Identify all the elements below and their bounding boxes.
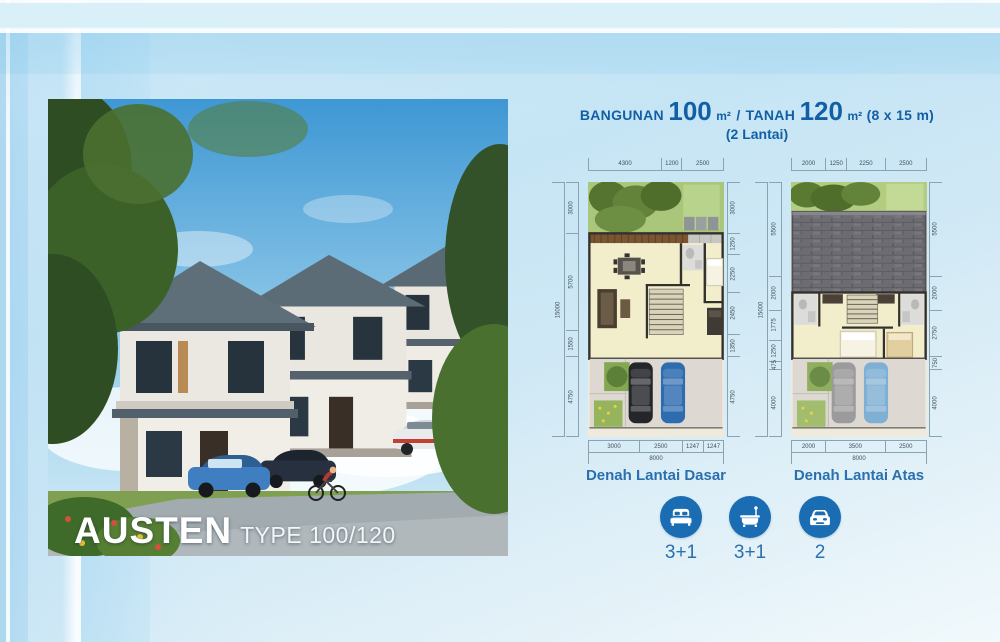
- dim-label: 2250: [859, 161, 872, 167]
- project-type: TYPE 100/120: [240, 522, 396, 548]
- dim-label: 2500: [899, 161, 912, 167]
- dim-label: 4300: [618, 161, 631, 167]
- dim-label: 1250: [772, 344, 778, 357]
- spec-line1: BANGUNAN 100 m² / TANAH 120 m² (8 x 15 m…: [545, 98, 969, 125]
- dim-label: 3000: [569, 201, 575, 214]
- bangunan-value: 100: [668, 96, 711, 126]
- dim-label: 2500: [654, 444, 667, 450]
- feature-carports: 2: [791, 496, 849, 564]
- feature-bathrooms: 3+1: [721, 496, 779, 564]
- dim-label: 1247: [686, 444, 699, 450]
- dims-top-upper: 2000125022502500: [791, 158, 927, 171]
- dim-label: 1250: [829, 161, 842, 167]
- dim-label: 2000: [772, 286, 778, 299]
- dim-label: 3000: [731, 201, 737, 214]
- bathroom-count: 3+1: [721, 542, 779, 564]
- dim-label: 1250: [731, 237, 737, 250]
- dim-label: 8000: [852, 456, 865, 462]
- dim-label: 15000: [555, 301, 561, 318]
- floorplan-ground-drawing: [588, 182, 724, 437]
- dims-top-ground: 430012002500: [588, 158, 724, 171]
- dim-label: 4000: [933, 396, 939, 409]
- dim-label: 4000: [772, 396, 778, 409]
- floorplan-ground: [588, 182, 724, 437]
- dim-label: 475: [772, 360, 778, 370]
- dims-left-ground: 3000570015504750: [566, 182, 579, 437]
- tanah-value: 120: [800, 96, 843, 126]
- floors-label: (2 Lantai): [545, 126, 969, 142]
- separator: /: [735, 107, 741, 123]
- spec-header: BANGUNAN 100 m² / TANAH 120 m² (8 x 15 m…: [545, 98, 969, 142]
- dim-label: 1550: [569, 337, 575, 350]
- dim-label: 2500: [696, 161, 709, 167]
- car-icon: [799, 496, 841, 538]
- bedroom-count: 3+1: [652, 542, 710, 564]
- tanah-label: TANAH: [746, 107, 795, 123]
- dim-label: 5500: [933, 223, 939, 236]
- dim-label: 4750: [731, 390, 737, 403]
- dim-label: 750: [933, 358, 939, 368]
- tanah-unit: m²: [847, 109, 862, 123]
- bath-icon: [729, 496, 771, 538]
- dims-left-total-ground: 15000: [552, 182, 565, 437]
- dim-label: 1247: [707, 444, 720, 450]
- dim-label: 2000: [933, 286, 939, 299]
- dims-left-upper: 55002000177512504754000: [769, 182, 782, 437]
- dims-bottom-ground: 3000250012471247: [588, 440, 724, 452]
- dims-right-upper: 5500200027507504000: [929, 182, 942, 437]
- house-render-photo: AUSTENTYPE 100/120: [48, 99, 508, 556]
- caption-ground-floor: Denah Lantai Dasar: [556, 467, 756, 484]
- dim-label: 1775: [772, 318, 778, 331]
- dims-right-ground: 300012502250245013504750: [727, 182, 740, 437]
- floorplan-upper-drawing: [791, 182, 927, 437]
- dim-label: 2000: [802, 161, 815, 167]
- dim-label: 3000: [607, 444, 620, 450]
- bed-icon: [660, 496, 702, 538]
- dim-label: 1200: [665, 161, 678, 167]
- dim-label: 5500: [772, 223, 778, 236]
- dim-label: 2000: [802, 444, 815, 450]
- feature-bedrooms: 3+1: [652, 496, 710, 564]
- dim-label: 2750: [933, 327, 939, 340]
- dim-label: 8000: [649, 456, 662, 462]
- floorplan-upper: [791, 182, 927, 437]
- bangunan-label: BANGUNAN: [580, 107, 664, 123]
- dim-label: 2500: [899, 444, 912, 450]
- dim-label: 3500: [849, 444, 862, 450]
- dim-label: 1350: [731, 339, 737, 352]
- caption-upper-floor: Denah Lantai Atas: [759, 467, 959, 484]
- dim-label: 2250: [731, 267, 737, 280]
- project-name: AUSTEN: [74, 510, 232, 551]
- bangunan-unit: m²: [716, 109, 731, 123]
- dim-label: 15000: [758, 301, 764, 318]
- dims-bottom-total-ground: 8000: [588, 452, 724, 464]
- dims-bottom-total-upper: 8000: [791, 452, 927, 464]
- photo-caption: AUSTENTYPE 100/120: [74, 510, 396, 552]
- lot-dimensions: (8 x 15 m): [867, 107, 935, 123]
- dim-label: 5700: [569, 275, 575, 288]
- dims-left-total-upper: 15000: [755, 182, 768, 437]
- dims-bottom-upper: 200035002500: [791, 440, 927, 452]
- dim-label: 2450: [731, 307, 737, 320]
- carport-count: 2: [791, 542, 849, 564]
- dim-label: 4750: [569, 390, 575, 403]
- house-render-scene: [48, 99, 508, 556]
